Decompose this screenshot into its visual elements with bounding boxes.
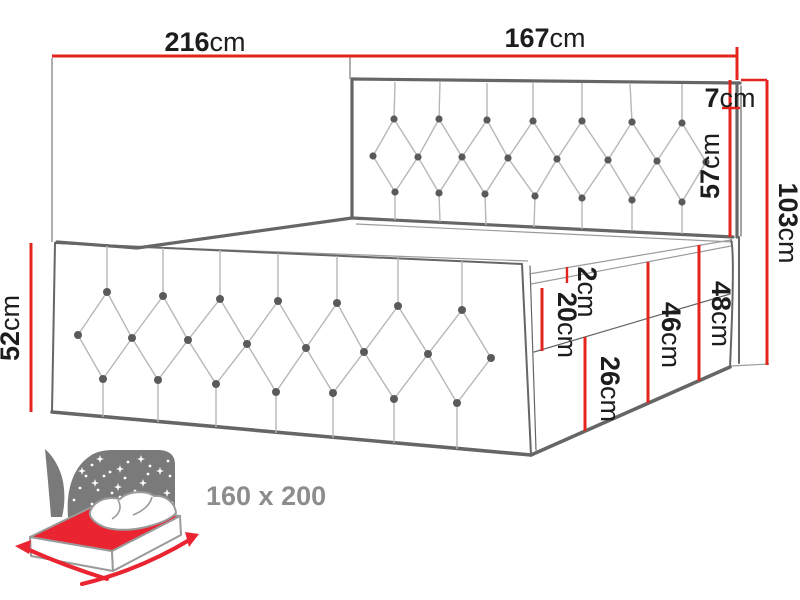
dim-total-length-label: 216cm bbox=[164, 27, 245, 57]
dim-front-panel-height-label: 52cm bbox=[0, 295, 25, 361]
dim-headboard-total-height-label: 103cm bbox=[773, 182, 800, 263]
dim-mattress-label: 20cm bbox=[552, 292, 582, 358]
corner-post-edge bbox=[530, 266, 536, 450]
front-panel-right-edge bbox=[522, 264, 531, 455]
dim-headboard-top-offset-label: 7cm bbox=[704, 83, 755, 113]
headboard-tufting bbox=[369, 82, 709, 234]
dim-headboard-width-label: 167cm bbox=[504, 23, 585, 53]
size-badge: 160 x 200 bbox=[15, 449, 326, 584]
headboard-top-edge bbox=[352, 79, 740, 83]
headboard-bottom-edge bbox=[352, 218, 733, 237]
bed-size-icon bbox=[15, 449, 199, 584]
front-panel-top-edge bbox=[55, 243, 522, 264]
dim-base-height-label: 26cm bbox=[595, 356, 625, 422]
mattress-left-edge bbox=[57, 218, 352, 248]
topper-bottom-line bbox=[531, 246, 731, 284]
size-label: 160 x 200 bbox=[206, 481, 326, 511]
dim-height-to-mattress-top-label: 46cm bbox=[656, 302, 686, 368]
dim-front-panel-height: 52cm bbox=[0, 243, 31, 412]
topper-top-line bbox=[529, 240, 731, 274]
front-panel-bottom-edge bbox=[52, 412, 531, 455]
dim-headboard-total-height: 103cm bbox=[741, 80, 800, 365]
diagram-stage: 216cm 167cm 52cm 7cm 57cm 103cm 2cm 20cm… bbox=[0, 0, 800, 600]
bed-drawing bbox=[52, 79, 769, 455]
dim-height-to-topper-top-label: 48cm bbox=[706, 281, 736, 347]
dimensions: 216cm 167cm 52cm 7cm 57cm 103cm 2cm 20cm… bbox=[0, 23, 800, 431]
bed-dimensions-diagram: 216cm 167cm 52cm 7cm 57cm 103cm 2cm 20cm… bbox=[0, 0, 800, 600]
front-panel bbox=[52, 243, 531, 455]
icon-backdrop-swoosh bbox=[45, 449, 64, 517]
floor-line bbox=[731, 364, 769, 366]
dim-headboard-above-surface-label: 57cm bbox=[695, 133, 725, 199]
dim-headboard-vertical: 7cm 57cm bbox=[695, 80, 756, 237]
front-panel-left-edge bbox=[52, 243, 55, 412]
dim-layer-heights: 2cm 20cm 46cm 48cm 26cm bbox=[542, 245, 736, 431]
